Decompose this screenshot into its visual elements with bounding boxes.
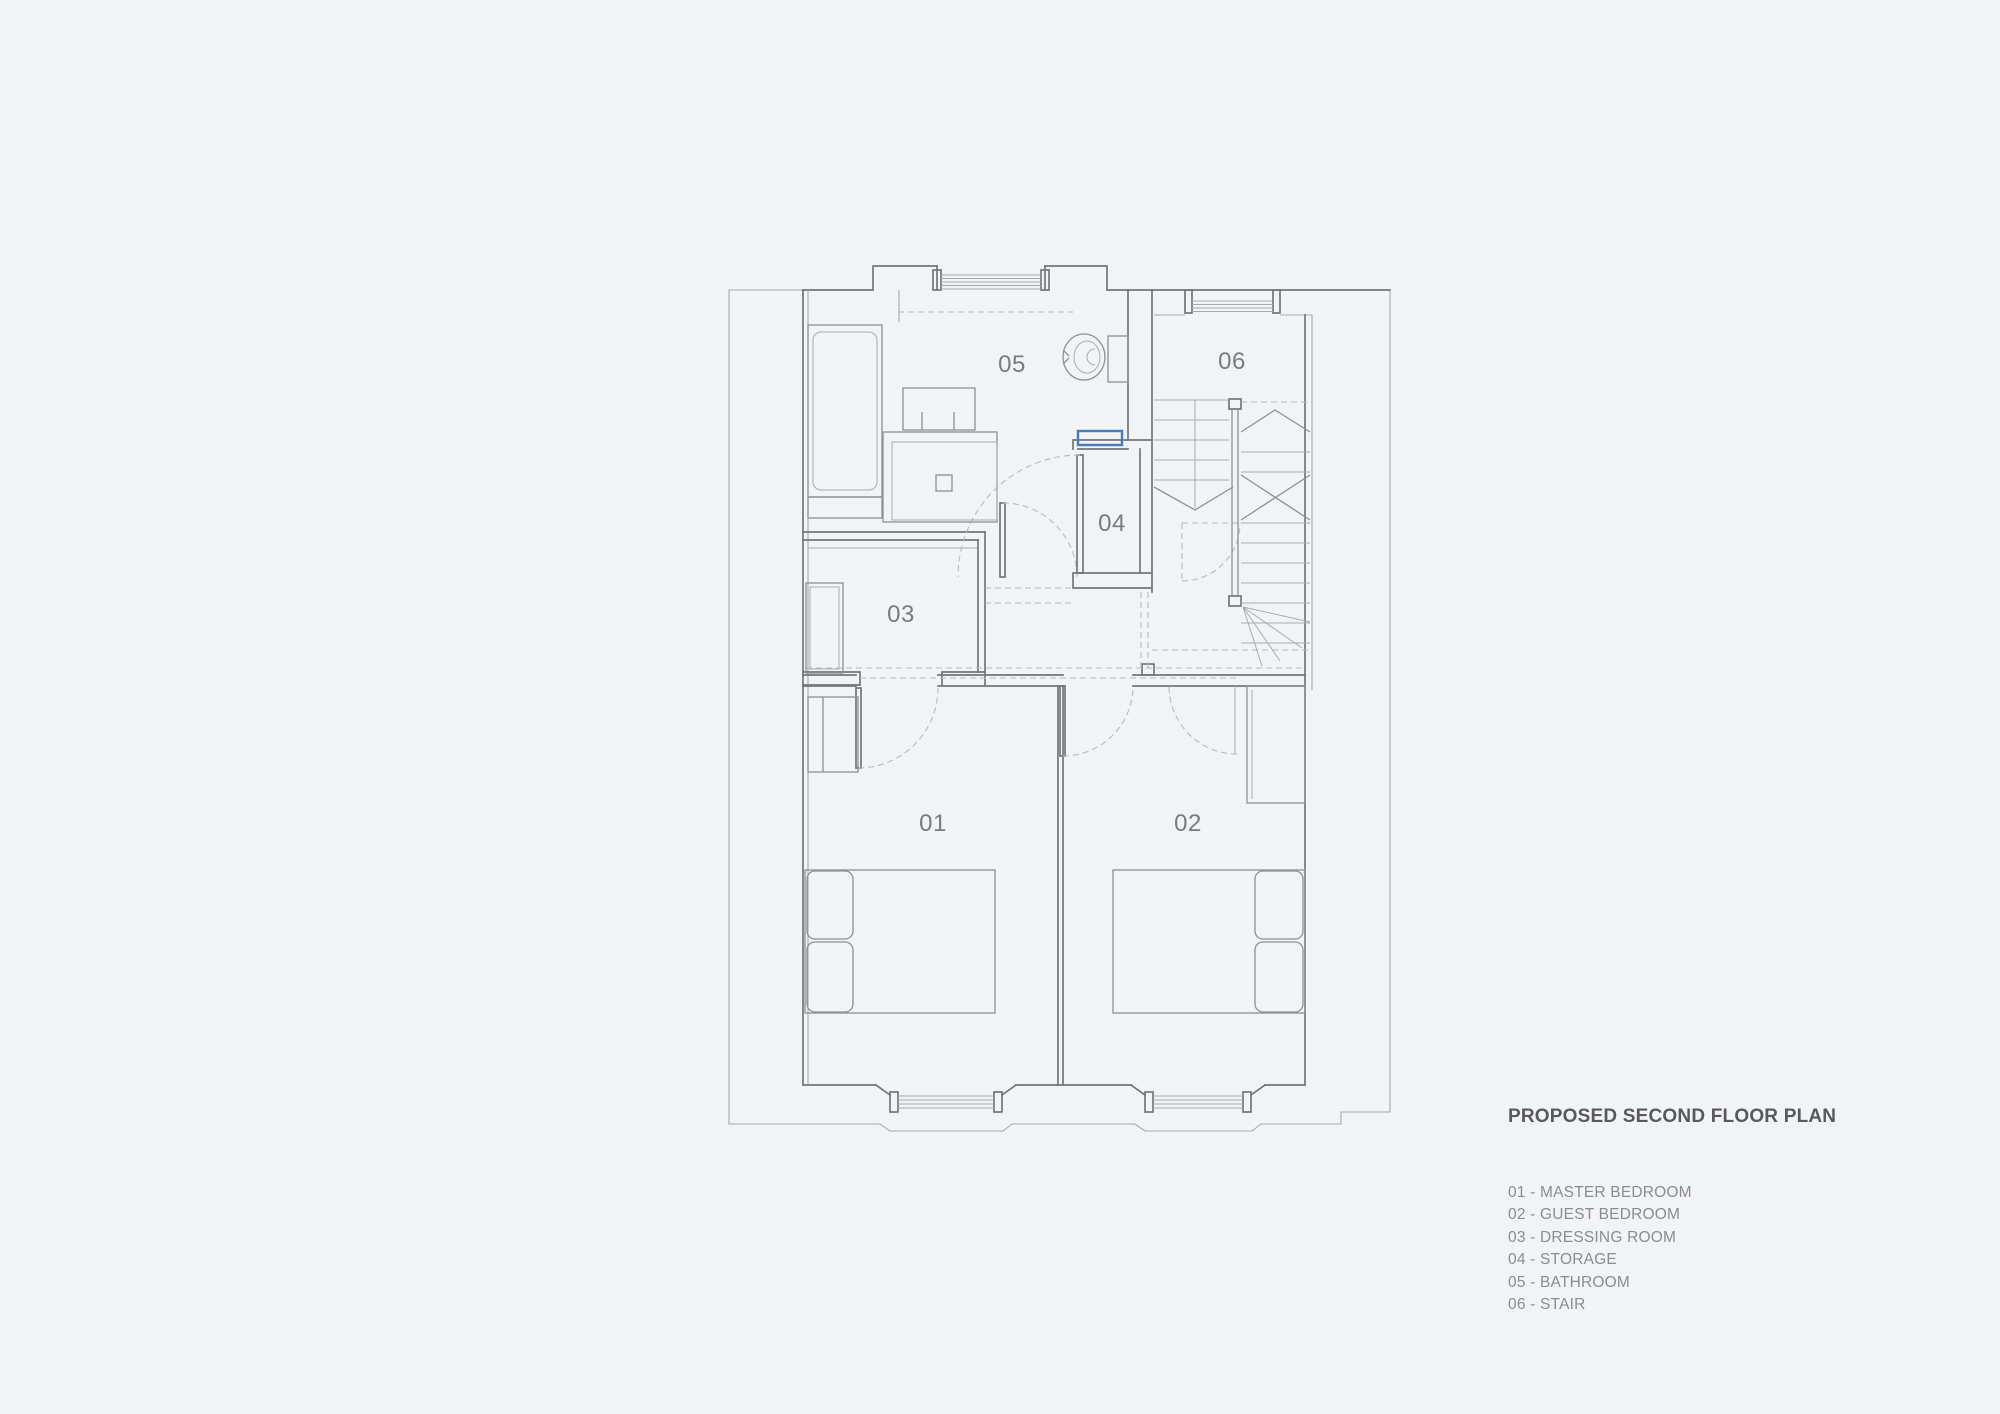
wardrobe-master-bedroom xyxy=(808,697,858,772)
bay-window-guest xyxy=(1131,1085,1265,1112)
legend-item-stair: 06 - STAIR xyxy=(1508,1294,1928,1316)
bathroom-door xyxy=(1000,503,1077,577)
stair-landing-door-below xyxy=(1169,686,1237,754)
wardrobe-guest-bedroom xyxy=(1247,686,1305,803)
vanity-unit xyxy=(883,432,997,522)
legend-item-storage: 04 - STORAGE xyxy=(1508,1249,1928,1271)
stair-break-line-down xyxy=(1154,487,1233,510)
stair-treads-lower-flight xyxy=(1241,402,1310,666)
stair-handrail xyxy=(1229,399,1241,606)
washbasin xyxy=(903,388,975,430)
stair-treads-upper-flight xyxy=(1154,400,1233,510)
pillow xyxy=(1255,871,1303,939)
bedroom-furniture xyxy=(805,583,1305,1013)
stair-winders xyxy=(1243,607,1310,666)
bathroom-fixtures xyxy=(808,325,1128,522)
bathtub xyxy=(808,325,882,518)
room-label-storage: 04 xyxy=(1098,510,1126,537)
stair-break-line-up xyxy=(1241,410,1310,432)
room-legend: 01 - MASTER BEDROOM 02 - GUEST BEDROOM 0… xyxy=(1508,1182,1928,1316)
room-label-stair: 06 xyxy=(1218,348,1246,375)
bay-window-master xyxy=(876,1085,1016,1112)
wardrobe-dressing-room xyxy=(806,583,843,673)
legend-item-bathroom: 05 - BATHROOM xyxy=(1508,1272,1928,1294)
toilet xyxy=(1063,334,1128,382)
room-label-dressing-room: 03 xyxy=(887,601,915,628)
staircase xyxy=(1154,399,1310,666)
guest-bed xyxy=(1113,870,1305,1013)
guest-bedroom-door xyxy=(1060,686,1133,756)
pillow xyxy=(807,942,853,1012)
legend-item-master-bedroom: 01 - MASTER BEDROOM xyxy=(1508,1182,1928,1204)
storage-door xyxy=(958,455,1083,577)
master-bedroom-door xyxy=(856,688,938,768)
stair-break-cross xyxy=(1241,475,1310,520)
page: { "drawing": { "title": "PROPOSED SECOND… xyxy=(0,0,2000,1414)
room-number-labels: 01 02 03 04 05 06 xyxy=(887,348,1246,837)
legend-item-dressing-room: 03 - DRESSING ROOM xyxy=(1508,1227,1928,1249)
radiator-blue-fixture xyxy=(1078,431,1122,445)
room-label-bathroom: 05 xyxy=(998,351,1026,378)
legend-item-guest-bedroom: 02 - GUEST BEDROOM xyxy=(1508,1204,1928,1226)
master-bed xyxy=(805,870,995,1013)
room-label-guest-bedroom: 02 xyxy=(1174,810,1202,837)
bathroom-window xyxy=(933,270,1049,290)
drawing-title: PROPOSED SECOND FLOOR PLAN xyxy=(1508,1106,1928,1128)
exterior-walls xyxy=(803,266,1390,1112)
stair-window xyxy=(1154,290,1312,315)
title-block: PROPOSED SECOND FLOOR PLAN 01 - MASTER B… xyxy=(1508,1106,1928,1316)
pillow xyxy=(807,871,853,939)
pillow xyxy=(1255,942,1303,1012)
room-label-master-bedroom: 01 xyxy=(919,810,947,837)
